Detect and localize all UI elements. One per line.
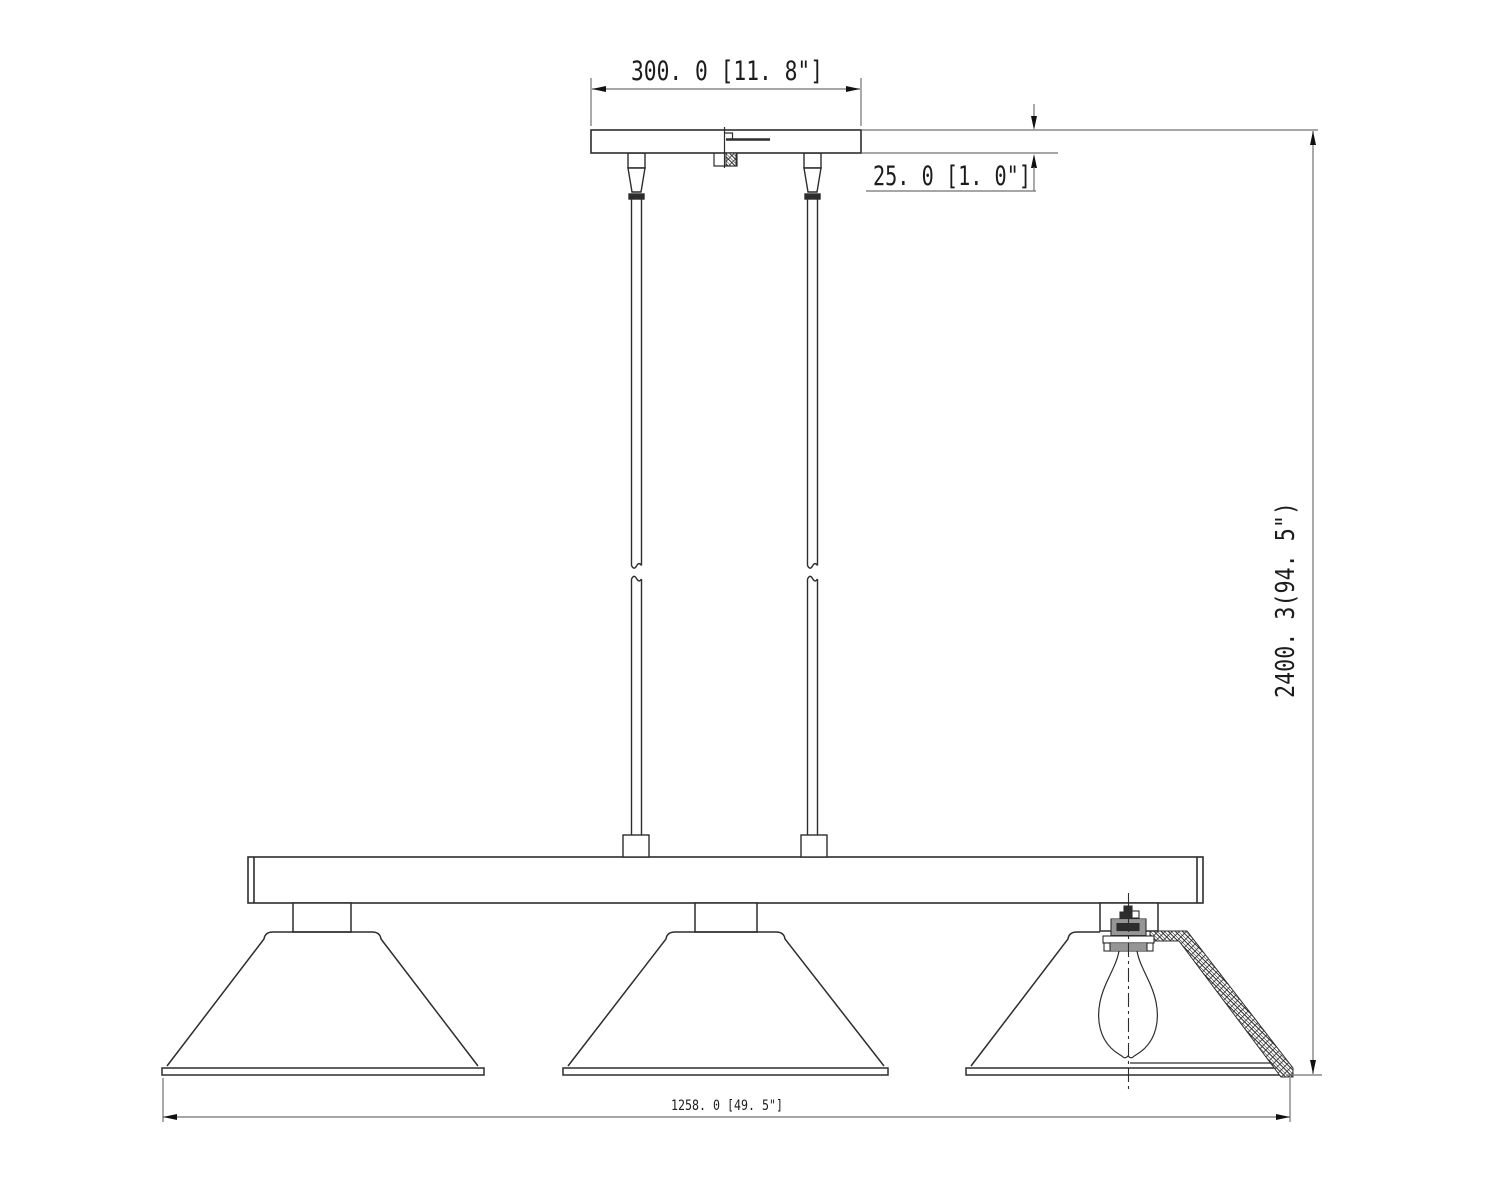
rod-break-symbol xyxy=(808,576,818,581)
left-shade-rim xyxy=(162,1068,484,1075)
dim-label-canopy-width: 300. 0 [11. 8"] xyxy=(631,56,823,87)
arrowhead xyxy=(1310,1060,1316,1074)
rod-knuckle xyxy=(805,194,820,199)
arrowhead xyxy=(592,86,606,92)
left-shade xyxy=(162,903,484,1075)
rod-break-symbol xyxy=(808,564,818,569)
right-shade-rim xyxy=(966,1068,1282,1075)
dim-label-overall-height: 2400. 3(94. 5") xyxy=(1271,502,1301,698)
arrowhead xyxy=(1276,1114,1290,1120)
arrowhead xyxy=(846,86,860,92)
rod-hanger xyxy=(628,153,645,168)
rod-mount-boss xyxy=(801,835,827,857)
rod-break-symbol xyxy=(632,576,642,581)
center-socket-holder xyxy=(695,903,757,932)
rod-break-symbol xyxy=(632,564,642,569)
center-shade xyxy=(563,903,888,1075)
arrowhead xyxy=(1031,116,1037,130)
rod-mount-boss xyxy=(623,835,649,857)
shade-section-hatch xyxy=(1150,931,1293,1077)
frame-beam xyxy=(248,857,1203,903)
rod-hanger xyxy=(804,153,821,168)
rod-knuckle xyxy=(629,194,644,199)
left-suspension-rod xyxy=(623,153,649,857)
center-shade-rim xyxy=(563,1068,888,1075)
dim-label-canopy-thickness: 25. 0 [1. 0"] xyxy=(873,161,1031,192)
right-shade-section xyxy=(966,893,1293,1092)
arrowhead xyxy=(163,1114,177,1120)
technical-drawing: 300. 0 [11. 8"] 25. 0 [1. 0"] 2400. 3(94… xyxy=(0,0,1500,1200)
left-socket-holder xyxy=(293,903,351,932)
dim-label-fixture-length: 1258. 0 [49. 5"] xyxy=(671,1098,783,1114)
drawing-canvas: 300. 0 [11. 8"] 25. 0 [1. 0"] 2400. 3(94… xyxy=(0,0,1500,1200)
right-suspension-rod xyxy=(801,153,827,857)
arrowhead xyxy=(1031,154,1037,168)
arrowhead xyxy=(1310,131,1316,145)
